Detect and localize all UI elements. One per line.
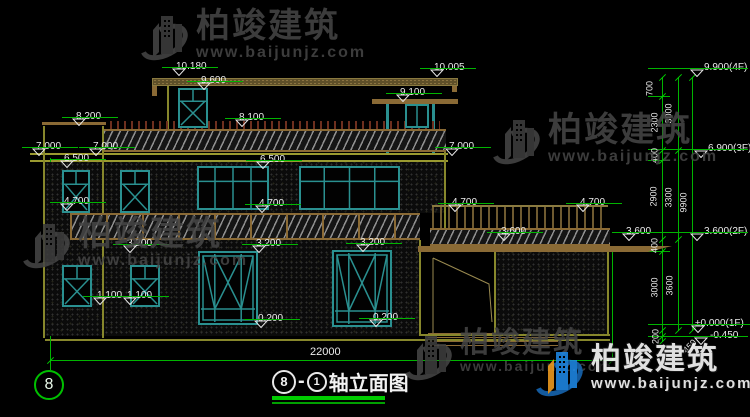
dimension-text: 700 xyxy=(646,72,655,106)
level-marker: 3.200 xyxy=(127,233,152,251)
dimension-text: 3000 xyxy=(651,271,660,305)
level-marker: 0.200 xyxy=(258,308,283,326)
dimension-text: 9900 xyxy=(680,186,689,220)
level-marker: 1.100 xyxy=(97,285,122,303)
overall-dimension: 22000 xyxy=(310,347,341,357)
drawing-title: 8-1轴立面图 xyxy=(272,367,409,396)
level-marker: 3.200 xyxy=(256,233,281,251)
level-marker: 9.600 xyxy=(201,70,226,88)
axis-bubble-label: 8 xyxy=(45,376,54,394)
level-marker: 7.000 xyxy=(93,136,118,154)
title-text: 轴立面图 xyxy=(329,367,409,396)
axis-bubble: 8 xyxy=(34,370,64,400)
floor-level-label: 9.900(4F) xyxy=(704,57,747,75)
dimension-text: 400 xyxy=(651,229,660,263)
level-marker: 0.200 xyxy=(373,307,398,325)
title-underline xyxy=(272,396,385,400)
dimension-text: 2300 xyxy=(651,106,660,140)
level-marker: 7.000 xyxy=(36,136,61,154)
level-marker: 3.600 xyxy=(626,221,651,239)
dimension-text: 400 xyxy=(651,139,660,173)
level-marker: 4.700 xyxy=(580,192,605,210)
floor-level-label: 6.900(3F) xyxy=(708,138,750,156)
elevation-drawing-canvas: 8-1轴立面图 8 22000 10.180 9.600 10.005 9.10… xyxy=(0,0,750,417)
dimension-text: 3600 xyxy=(666,269,675,303)
level-marker: 1.100 xyxy=(127,285,152,303)
level-marker: 6.500 xyxy=(64,148,89,166)
level-marker: 8.100 xyxy=(239,107,264,125)
level-marker: 9.100 xyxy=(400,82,425,100)
floor-level-label: 3.600(2F) xyxy=(704,221,747,239)
level-marker: 10.005 xyxy=(434,57,465,75)
level-marker: 4.700 xyxy=(259,193,284,211)
dimension-text: 200 xyxy=(652,320,661,354)
level-marker: 3.200 xyxy=(360,232,385,250)
title-axis-end: 1 xyxy=(307,372,327,392)
dimension-text: 2900 xyxy=(650,180,659,214)
title-underline-thin xyxy=(272,402,385,404)
level-marker: 4.700 xyxy=(452,192,477,210)
floor-level-label: -0.450 xyxy=(710,325,738,343)
dimension-text: 3000 xyxy=(665,97,674,131)
level-marker: 6.500 xyxy=(260,149,285,167)
level-marker: 7.000 xyxy=(449,136,474,154)
title-axis-start: 8 xyxy=(272,370,296,394)
dimension-text: 3300 xyxy=(665,181,674,215)
title-separator: - xyxy=(298,370,305,393)
level-marker: 3.600 xyxy=(501,221,526,239)
level-marker: 4.700 xyxy=(64,191,89,209)
level-marker: 8.200 xyxy=(76,106,101,124)
